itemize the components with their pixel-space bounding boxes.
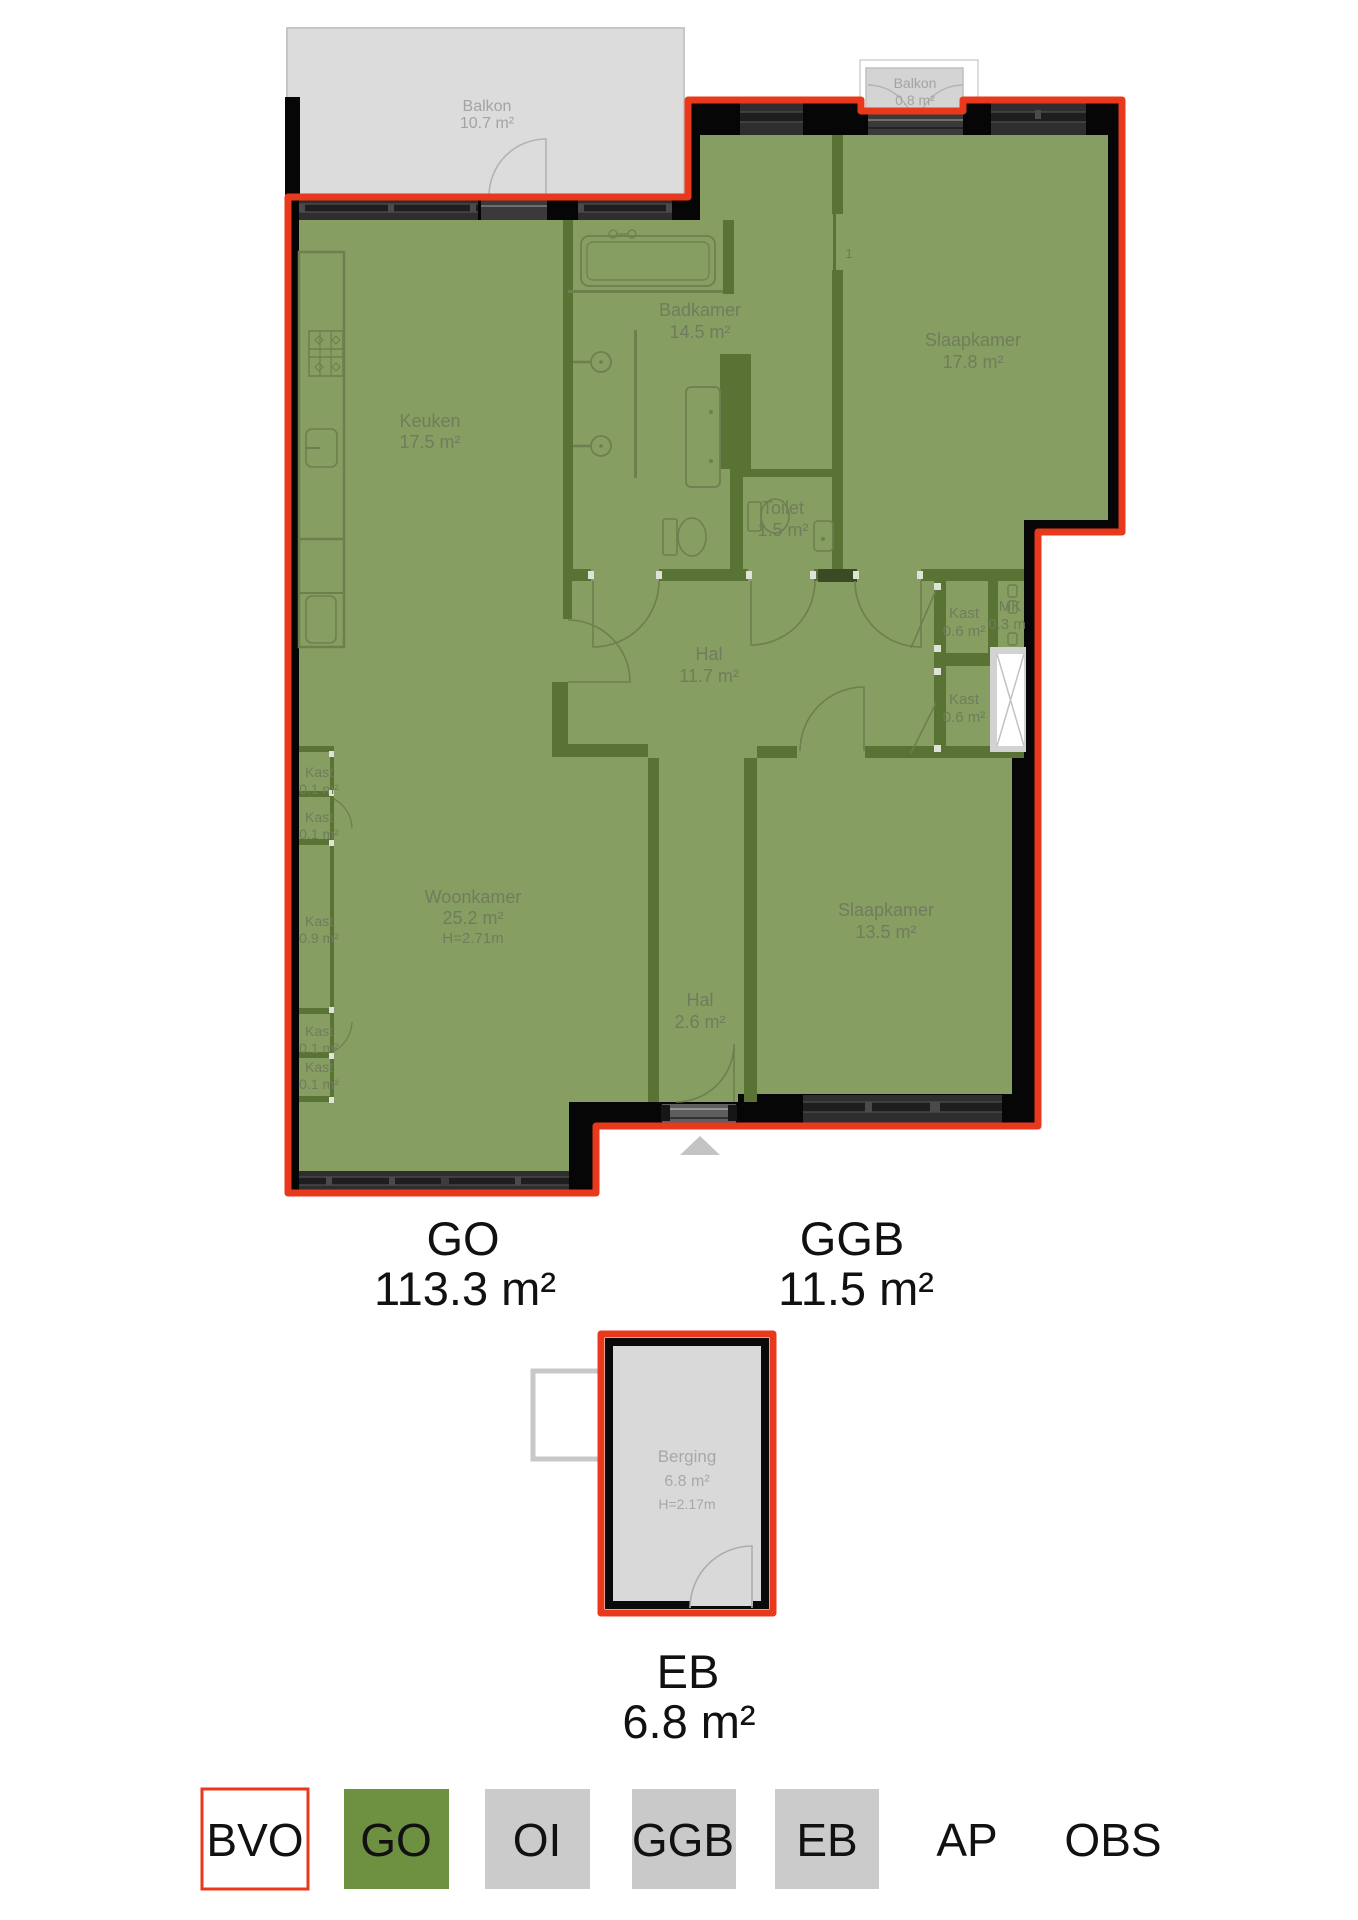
svg-text:BVO: BVO bbox=[206, 1814, 303, 1866]
svg-text:14.5 m²: 14.5 m² bbox=[669, 322, 730, 342]
svg-text:Hal: Hal bbox=[695, 644, 722, 664]
svg-text:Kast: Kast bbox=[305, 764, 333, 780]
svg-text:Slaapkamer: Slaapkamer bbox=[925, 330, 1021, 350]
svg-text:113.3 m²: 113.3 m² bbox=[374, 1262, 556, 1315]
svg-text:EB: EB bbox=[657, 1645, 720, 1698]
svg-text:0.6 m²: 0.6 m² bbox=[943, 709, 986, 726]
svg-text:Woonkamer: Woonkamer bbox=[425, 887, 522, 907]
svg-text:13.5 m²: 13.5 m² bbox=[855, 922, 916, 942]
svg-text:H=2.71m: H=2.71m bbox=[442, 930, 503, 947]
svg-text:GGB: GGB bbox=[800, 1212, 904, 1265]
svg-text:GO: GO bbox=[360, 1814, 432, 1866]
svg-text:10.7 m²: 10.7 m² bbox=[460, 115, 515, 132]
svg-text:25.2 m²: 25.2 m² bbox=[442, 908, 503, 928]
svg-text:GGB: GGB bbox=[632, 1814, 734, 1866]
svg-text:Kast: Kast bbox=[949, 605, 980, 622]
svg-text:Balkon: Balkon bbox=[463, 98, 512, 115]
svg-text:11.5 m²: 11.5 m² bbox=[778, 1262, 934, 1315]
svg-text:EB: EB bbox=[796, 1814, 857, 1866]
svg-text:Kast: Kast bbox=[949, 691, 980, 708]
svg-text:0.1 m²: 0.1 m² bbox=[299, 1076, 339, 1092]
svg-text:1: 1 bbox=[845, 246, 852, 261]
svg-text:Kast: Kast bbox=[305, 1059, 333, 1075]
svg-text:1.5 m²: 1.5 m² bbox=[757, 520, 808, 540]
svg-text:Berging: Berging bbox=[658, 1447, 717, 1466]
svg-text:17.8 m²: 17.8 m² bbox=[942, 352, 1003, 372]
svg-text:Badkamer: Badkamer bbox=[659, 300, 741, 320]
svg-text:11.7 m²: 11.7 m² bbox=[679, 666, 739, 686]
svg-text:GO: GO bbox=[426, 1212, 499, 1265]
svg-text:6.8 m²: 6.8 m² bbox=[622, 1695, 755, 1748]
svg-text:OI: OI bbox=[513, 1814, 562, 1866]
svg-text:MK: MK bbox=[999, 598, 1022, 615]
svg-text:Kast: Kast bbox=[305, 913, 333, 929]
svg-text:Keuken: Keuken bbox=[399, 411, 460, 431]
svg-text:0.3 m: 0.3 m bbox=[988, 616, 1026, 633]
svg-text:Hal: Hal bbox=[686, 990, 713, 1010]
svg-text:0.6 m²: 0.6 m² bbox=[943, 623, 986, 640]
svg-text:H=2.17m: H=2.17m bbox=[658, 1496, 715, 1512]
svg-text:OBS: OBS bbox=[1064, 1814, 1161, 1866]
svg-text:2.6 m²: 2.6 m² bbox=[674, 1012, 725, 1032]
svg-text:0.1 m²: 0.1 m² bbox=[299, 781, 339, 797]
svg-text:Toilet: Toilet bbox=[762, 498, 804, 518]
svg-text:17.5 m²: 17.5 m² bbox=[399, 432, 460, 452]
svg-text:0.1 m²: 0.1 m² bbox=[299, 826, 339, 842]
svg-text:Kast: Kast bbox=[305, 1023, 333, 1039]
svg-text:0.8 m²: 0.8 m² bbox=[895, 92, 935, 108]
svg-text:6.8 m²: 6.8 m² bbox=[664, 1473, 710, 1490]
svg-text:Slaapkamer: Slaapkamer bbox=[838, 900, 934, 920]
svg-text:AP: AP bbox=[936, 1814, 997, 1866]
svg-text:0.9 m²: 0.9 m² bbox=[299, 930, 339, 946]
svg-text:0.1 m²: 0.1 m² bbox=[299, 1040, 339, 1056]
svg-text:Balkon: Balkon bbox=[894, 75, 937, 91]
svg-text:Kast: Kast bbox=[305, 809, 333, 825]
